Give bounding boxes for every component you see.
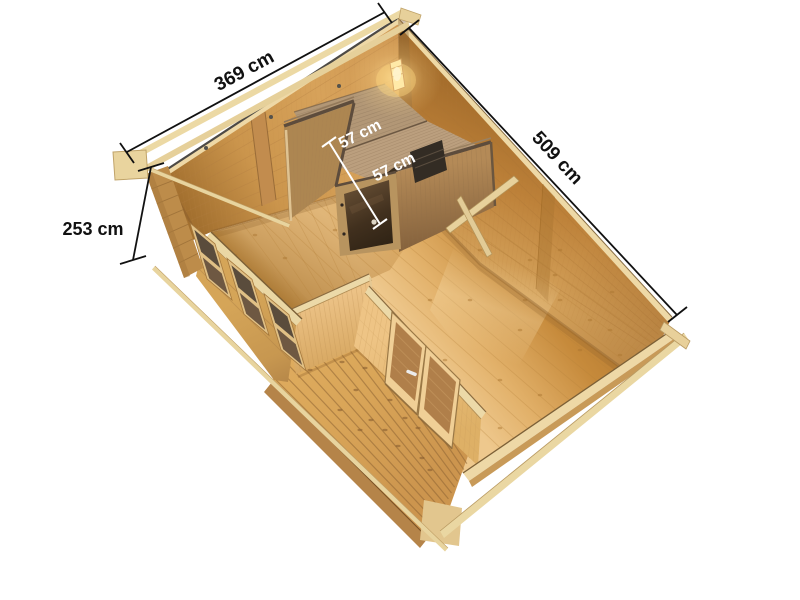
svg-text:253 cm: 253 cm [62,219,123,239]
